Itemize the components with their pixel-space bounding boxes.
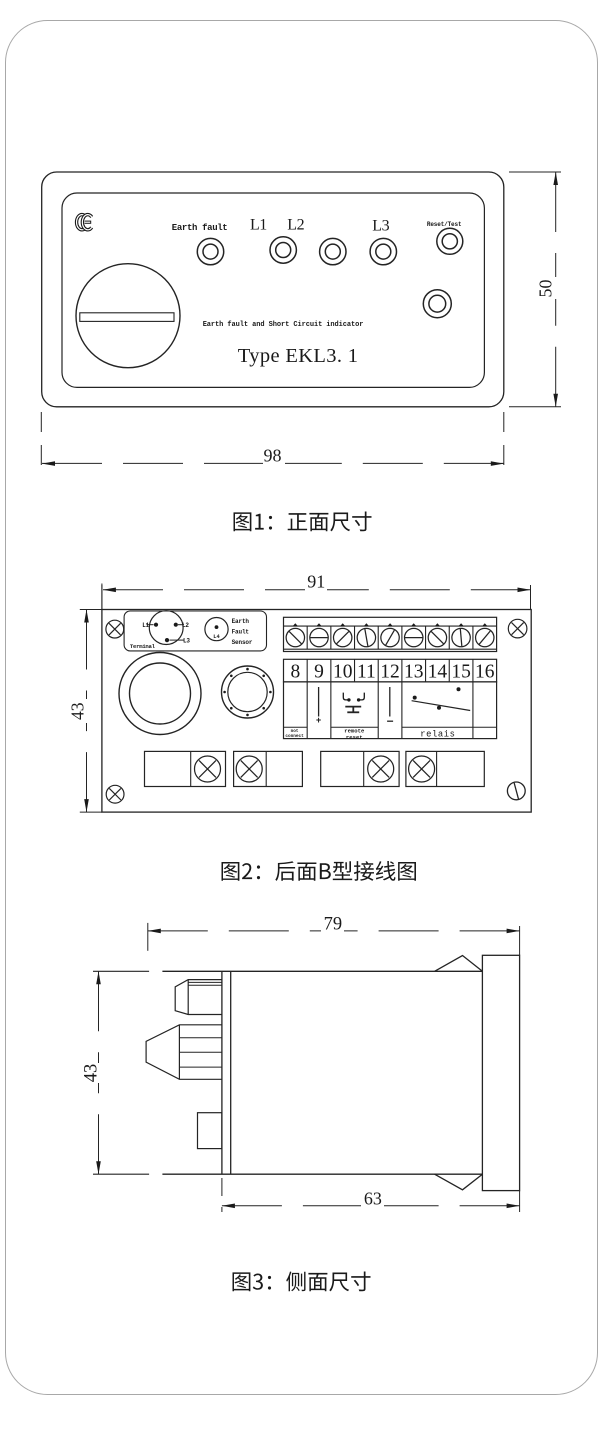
svg-text:43: 43 (67, 702, 87, 720)
svg-text:Sensor: Sensor (232, 639, 253, 646)
svg-text:63: 63 (364, 1189, 382, 1209)
svg-text:Fault: Fault (232, 628, 250, 635)
svg-text:16: 16 (475, 662, 495, 683)
svg-text:14: 14 (428, 662, 448, 683)
svg-text:Reset/Test: Reset/Test (427, 221, 462, 228)
svg-text:L4: L4 (213, 634, 220, 640)
svg-text:L2: L2 (287, 216, 304, 233)
svg-text:relais: relais (420, 730, 455, 740)
svg-text:L2: L2 (182, 622, 189, 629)
svg-text:98: 98 (264, 446, 282, 466)
svg-text:10: 10 (333, 662, 353, 683)
svg-text:L1: L1 (250, 216, 267, 233)
svg-text:79: 79 (324, 914, 343, 934)
svg-text:L3: L3 (372, 217, 389, 234)
svg-text:11: 11 (357, 662, 376, 683)
svg-text:13: 13 (404, 662, 424, 683)
svg-text:L3: L3 (183, 638, 190, 645)
svg-text:9: 9 (314, 662, 324, 683)
svg-text:Earth fault and Short Circuit: Earth fault and Short Circuit indicator (203, 321, 364, 329)
svg-text:15: 15 (451, 662, 471, 683)
svg-text:Earth fault: Earth fault (172, 223, 228, 233)
svg-text:Terminal: Terminal (130, 643, 156, 650)
svg-text:L1: L1 (142, 622, 149, 629)
svg-text:50: 50 (536, 280, 556, 298)
svg-text:reset: reset (346, 734, 363, 741)
svg-text:12: 12 (380, 662, 400, 683)
svg-text:Earth: Earth (232, 618, 250, 625)
svg-text:Type EKL3. 1: Type EKL3. 1 (238, 345, 359, 367)
svg-text:91: 91 (307, 571, 325, 591)
svg-text:43: 43 (81, 1064, 101, 1083)
svg-text:+: + (316, 716, 321, 726)
svg-text:connect: connect (285, 734, 304, 739)
svg-text:8: 8 (290, 662, 300, 683)
